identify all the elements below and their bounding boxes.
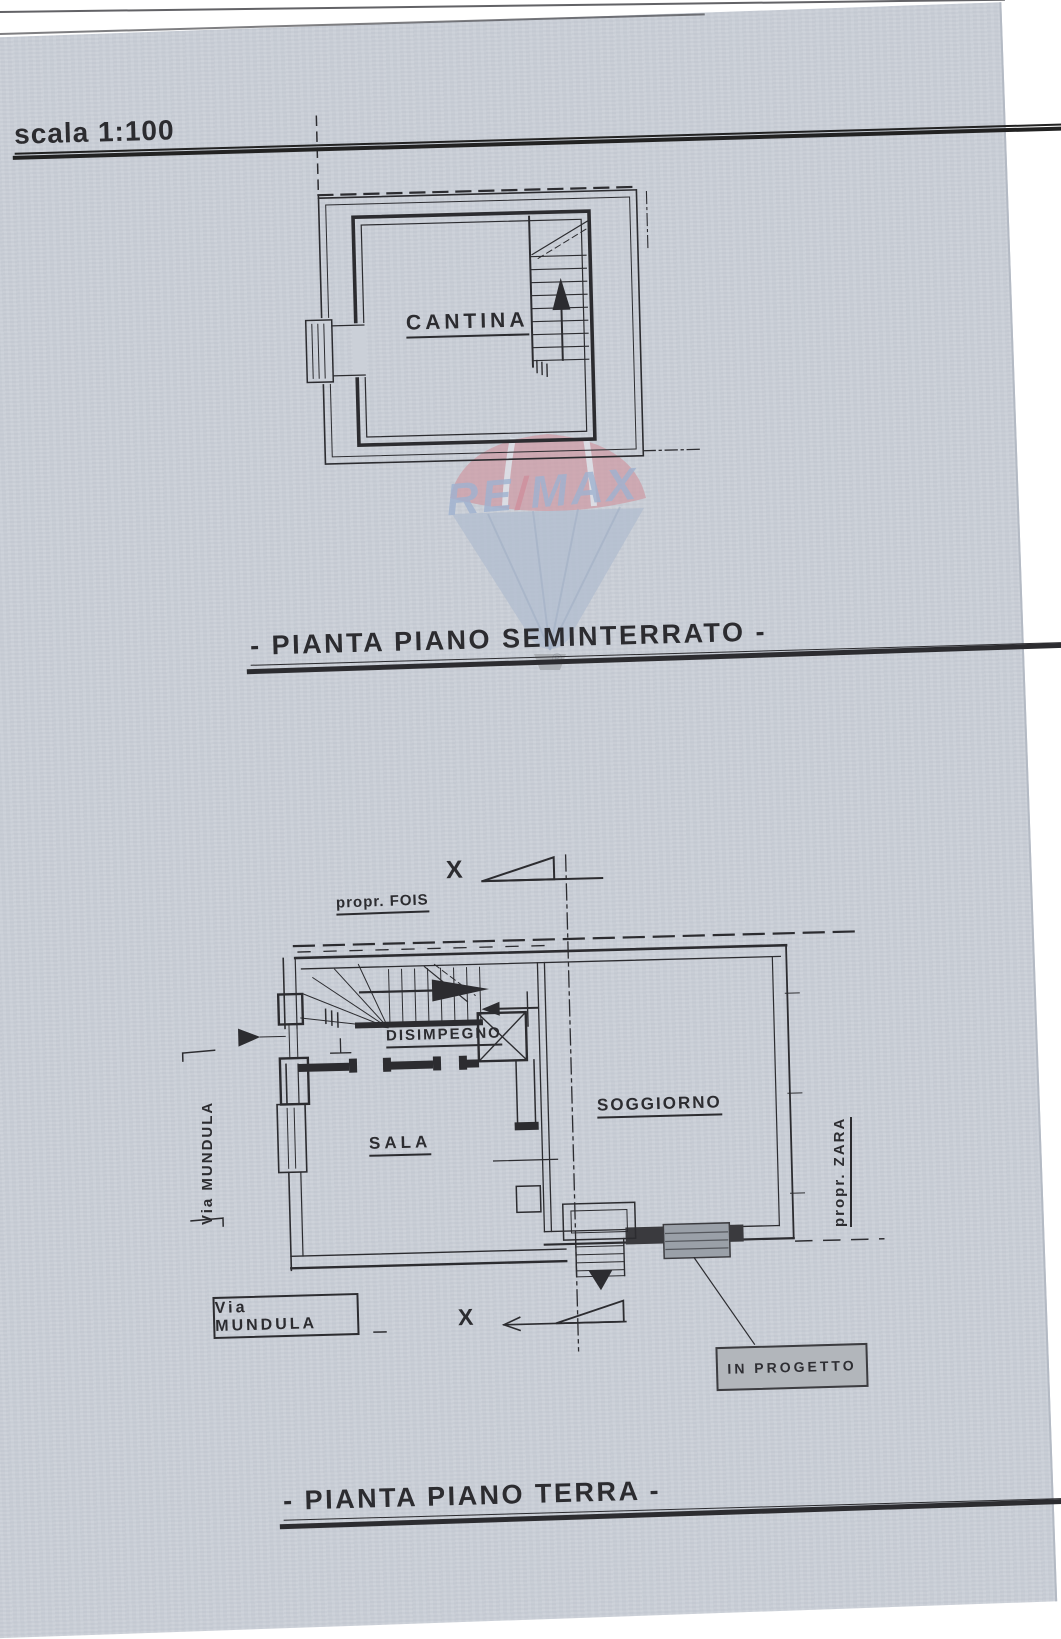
section-marker-x-bottom: X <box>458 1304 474 1332</box>
via-mundula-box-text: Via MUNDULA <box>215 1296 358 1336</box>
propr-zara-text: propr. ZARA <box>831 1117 852 1227</box>
stair-up-arrow-icon <box>552 278 572 360</box>
basement-window-recess <box>306 317 368 385</box>
cantina-room-text: CANTINA <box>406 308 529 338</box>
entrance-steps <box>563 1202 637 1291</box>
disimpegno-room-label: DISIMPEGNO <box>386 1024 502 1044</box>
sala-room-label: SALA <box>369 1132 432 1154</box>
soggiorno-room-label: SOGGIORNO <box>597 1092 722 1115</box>
propr-zara-label: propr. ZARA <box>831 1117 848 1227</box>
in-progetto-text: IN PROGETTO <box>727 1357 857 1377</box>
propr-fois-text: propr. FOIS <box>336 891 429 915</box>
soggiorno-room-text: SOGGIORNO <box>597 1092 722 1118</box>
steps-down-arrow-icon <box>588 1270 613 1291</box>
scanned-floorplan-page: { "document": { "scale_note": "scala 1:1… <box>0 0 1061 1500</box>
via-mundula-street-label: Via MUNDULA <box>199 1101 216 1225</box>
sala-room-text: SALA <box>369 1132 432 1157</box>
section-marker-x-top: X <box>445 856 463 886</box>
projected-steps <box>663 1223 730 1259</box>
stair-counter-arrow-icon <box>481 992 538 1027</box>
section-arrow-top-icon <box>482 856 603 881</box>
in-progetto-annotation: IN PROGETTO <box>715 1343 868 1391</box>
section-arrow-bottom-icon <box>373 1301 626 1335</box>
cantina-room-label: CANTINA <box>406 308 529 335</box>
stair-direction-arrow-icon <box>360 978 490 1003</box>
entrance-arrow-icon <box>238 1027 285 1046</box>
via-mundula-street-box: Via MUNDULA <box>212 1293 359 1339</box>
disimpegno-room-text: DISIMPEGNO <box>386 1024 502 1048</box>
propr-fois-label: propr. FOIS <box>336 891 429 911</box>
